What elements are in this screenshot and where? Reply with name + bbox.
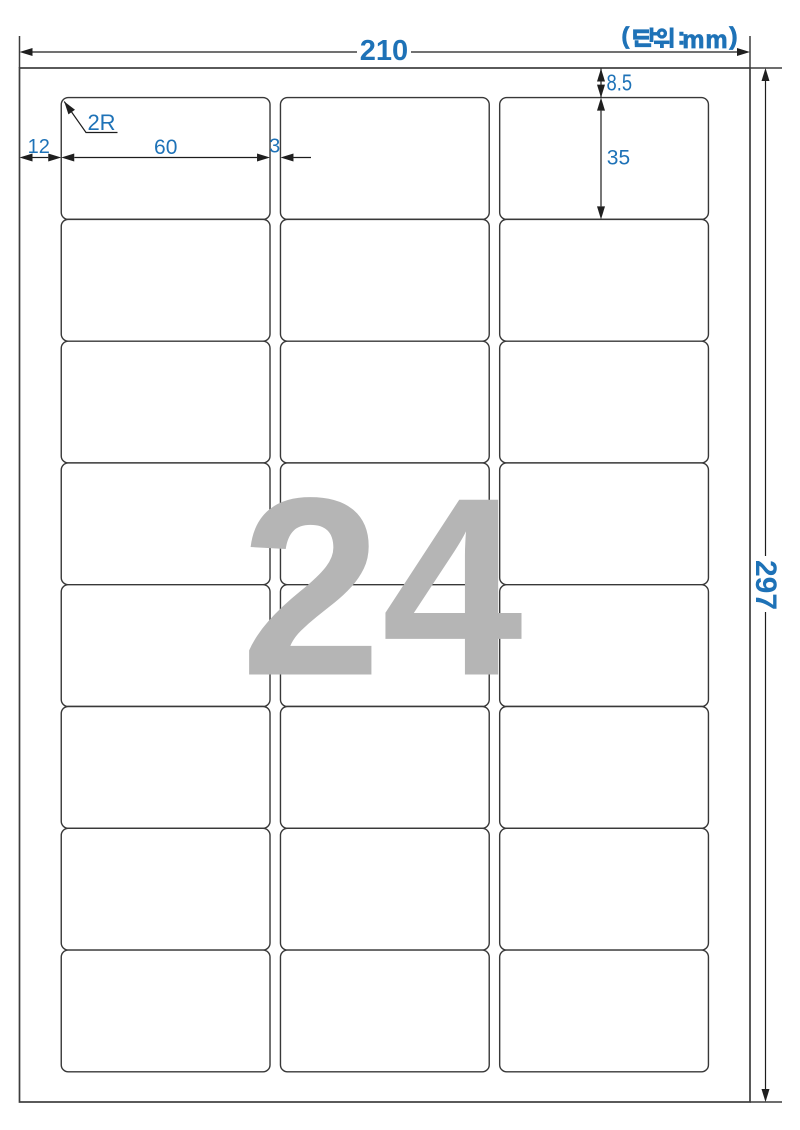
svg-text:): ) <box>729 23 737 51</box>
svg-text:3: 3 <box>269 136 280 158</box>
svg-text:12: 12 <box>28 136 50 158</box>
svg-text:2R: 2R <box>87 110 115 135</box>
svg-text:210: 210 <box>360 35 408 67</box>
svg-text:60: 60 <box>154 136 177 159</box>
svg-text:24: 24 <box>240 445 523 729</box>
svg-text:297: 297 <box>749 560 782 610</box>
svg-text:mm: mm <box>682 26 728 54</box>
svg-text:8.5: 8.5 <box>607 71 633 96</box>
svg-text:(: ( <box>622 23 630 49</box>
svg-text:35: 35 <box>607 146 630 169</box>
